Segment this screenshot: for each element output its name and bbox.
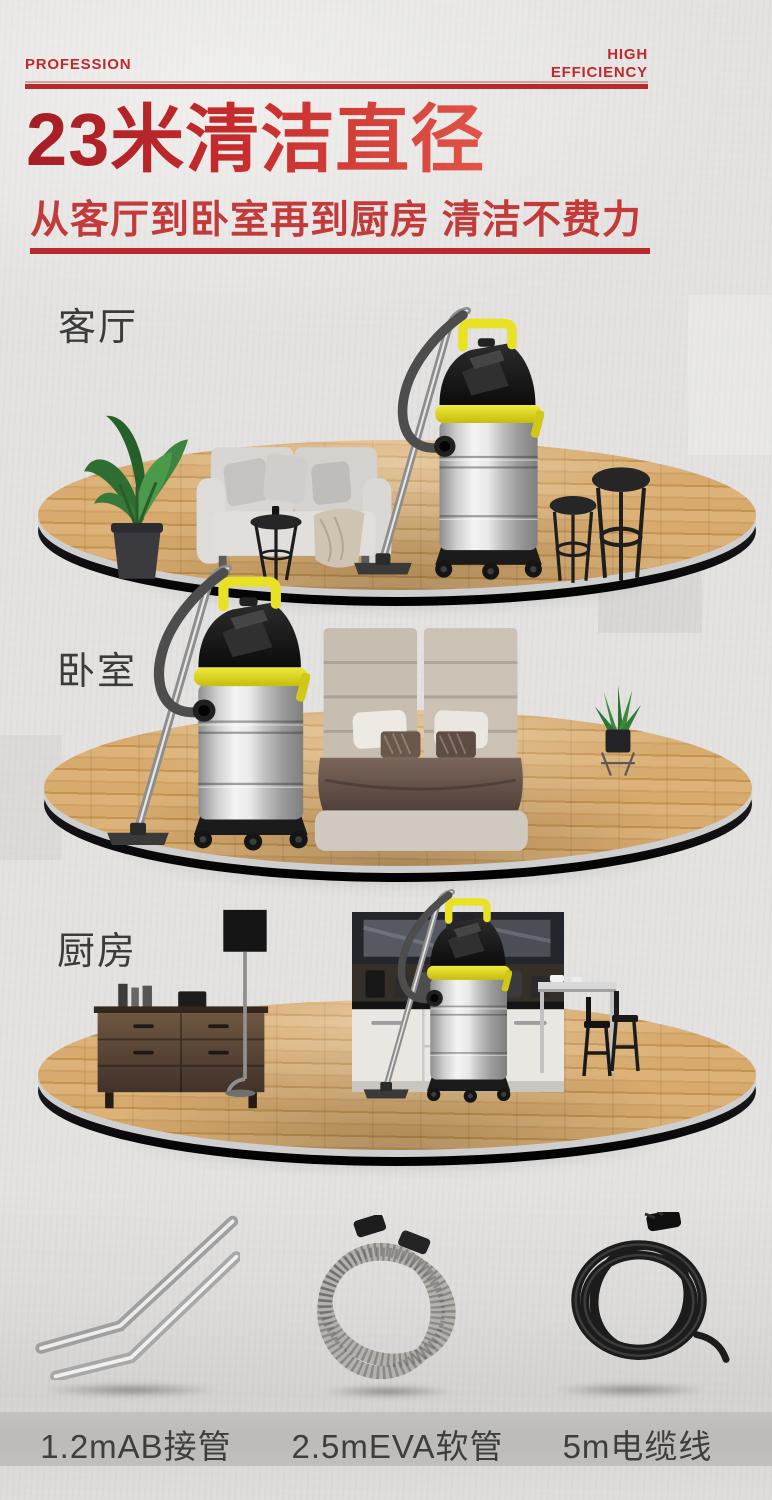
scene-living-room: 客厅 xyxy=(0,270,772,600)
kitchen-island-image xyxy=(538,975,658,1081)
power-cable-image xyxy=(552,1212,730,1370)
bent-tubes-image xyxy=(28,1212,240,1380)
header-tag-right-line2: EFFICIENCY xyxy=(551,64,648,82)
promo-poster: PROFESSION HIGH EFFICIENCY 23米清洁直径 从客厅到卧… xyxy=(0,0,772,1500)
scene-kitchen-label: 厨房 xyxy=(57,920,137,975)
vacuum-cleaner-image xyxy=(352,298,544,584)
aloe-plant-image xyxy=(586,678,650,780)
accessory-label-ab-tube: 1.2mAB接管 xyxy=(36,1420,236,1468)
vacuum-cleaner-image xyxy=(105,555,310,855)
floor-lamp-image xyxy=(212,908,278,1098)
double-bed-image xyxy=(308,622,533,860)
accessories-section: 1.2mAB接管 2.5mEVA软管 5m电缆线 xyxy=(0,1190,772,1500)
header-tag-right-line1: HIGH xyxy=(551,46,648,64)
potted-plant-image xyxy=(80,358,195,583)
header-tag-right: HIGH EFFICIENCY xyxy=(551,46,648,82)
scene-bedroom: 卧室 xyxy=(0,600,772,930)
subtitle-underline xyxy=(30,248,650,254)
item-shadow xyxy=(318,1384,458,1399)
stool-image xyxy=(590,466,652,586)
scene-living-room-label: 客厅 xyxy=(58,296,138,351)
page-subtitle: 从客厅到卧室再到厨房 清洁不费力 xyxy=(30,189,642,245)
page-title: 23米清洁直径 xyxy=(26,101,485,179)
header-divider-double-line xyxy=(25,81,648,89)
accessory-label-eva-hose: 2.5mEVA软管 xyxy=(290,1420,505,1468)
item-shadow xyxy=(548,1382,713,1398)
item-shadow xyxy=(36,1382,226,1398)
vacuum-cleaner-image xyxy=(362,882,512,1106)
header-tag-left: PROFESSION xyxy=(25,56,131,73)
eva-hose-image xyxy=(302,1215,464,1383)
scene-kitchen: 厨房 xyxy=(0,900,772,1240)
accessory-label-cable: 5m电缆线 xyxy=(540,1420,735,1468)
